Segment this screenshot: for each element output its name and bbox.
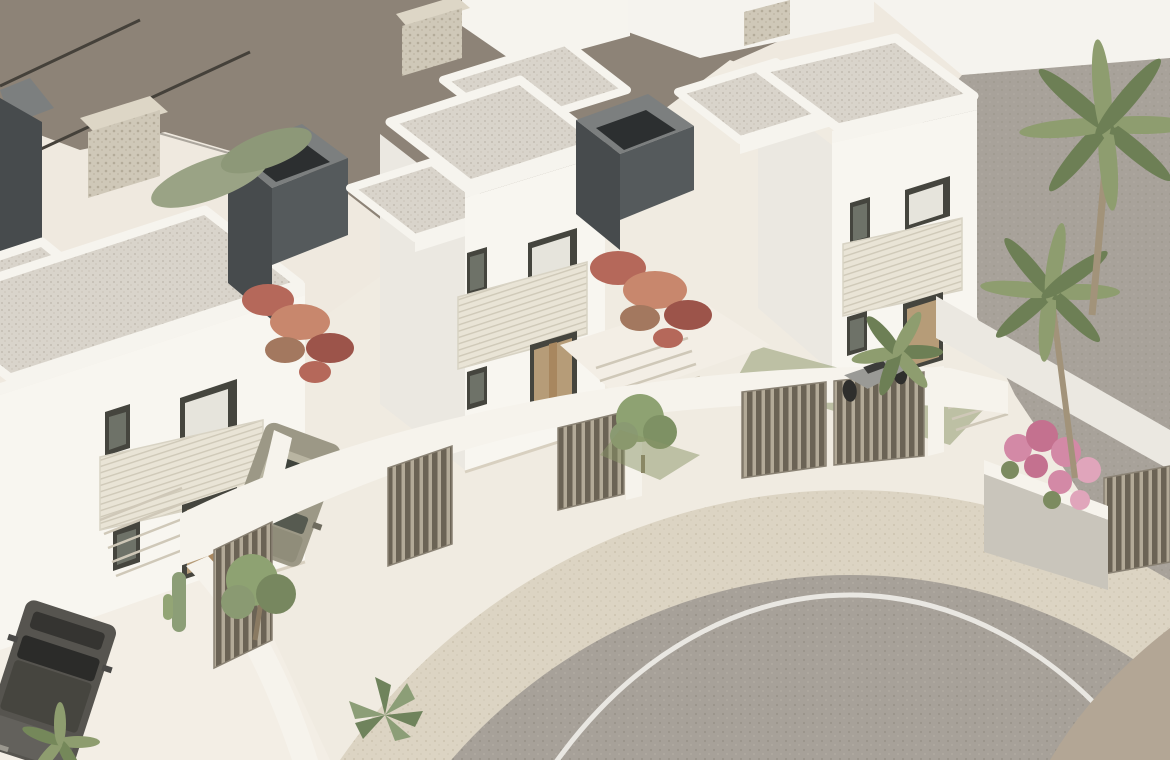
- window-glass: [853, 203, 867, 241]
- vine-cluster: [306, 333, 354, 363]
- palm-frond: [54, 702, 66, 746]
- vine-cluster: [620, 305, 660, 331]
- leaf-cluster: [1001, 461, 1019, 479]
- vine-cluster: [265, 337, 305, 363]
- window-glass: [470, 372, 484, 404]
- render-canvas: [0, 0, 1170, 760]
- flower-cluster: [1048, 470, 1072, 494]
- vine-cluster: [653, 328, 683, 348]
- flower-cluster: [1070, 490, 1090, 510]
- window-glass: [109, 412, 126, 450]
- fence-panel: [742, 382, 826, 478]
- fence-pillar: [928, 366, 944, 456]
- tree-canopy: [221, 585, 255, 619]
- architectural-render: [0, 0, 1170, 760]
- cactus-stem: [172, 572, 186, 632]
- fence-panel: [388, 446, 452, 566]
- flower-cluster: [1024, 454, 1048, 478]
- flower-cluster: [1051, 437, 1081, 467]
- fence-panel: [1104, 466, 1170, 574]
- cactus-arm: [163, 594, 173, 620]
- flower-cluster: [1075, 457, 1101, 483]
- vine-cluster: [299, 361, 331, 383]
- leaf-cluster: [1043, 491, 1061, 509]
- tree-canopy: [256, 574, 296, 614]
- window-glass: [470, 253, 484, 291]
- window-glass: [850, 317, 864, 351]
- vine-cluster: [664, 300, 712, 330]
